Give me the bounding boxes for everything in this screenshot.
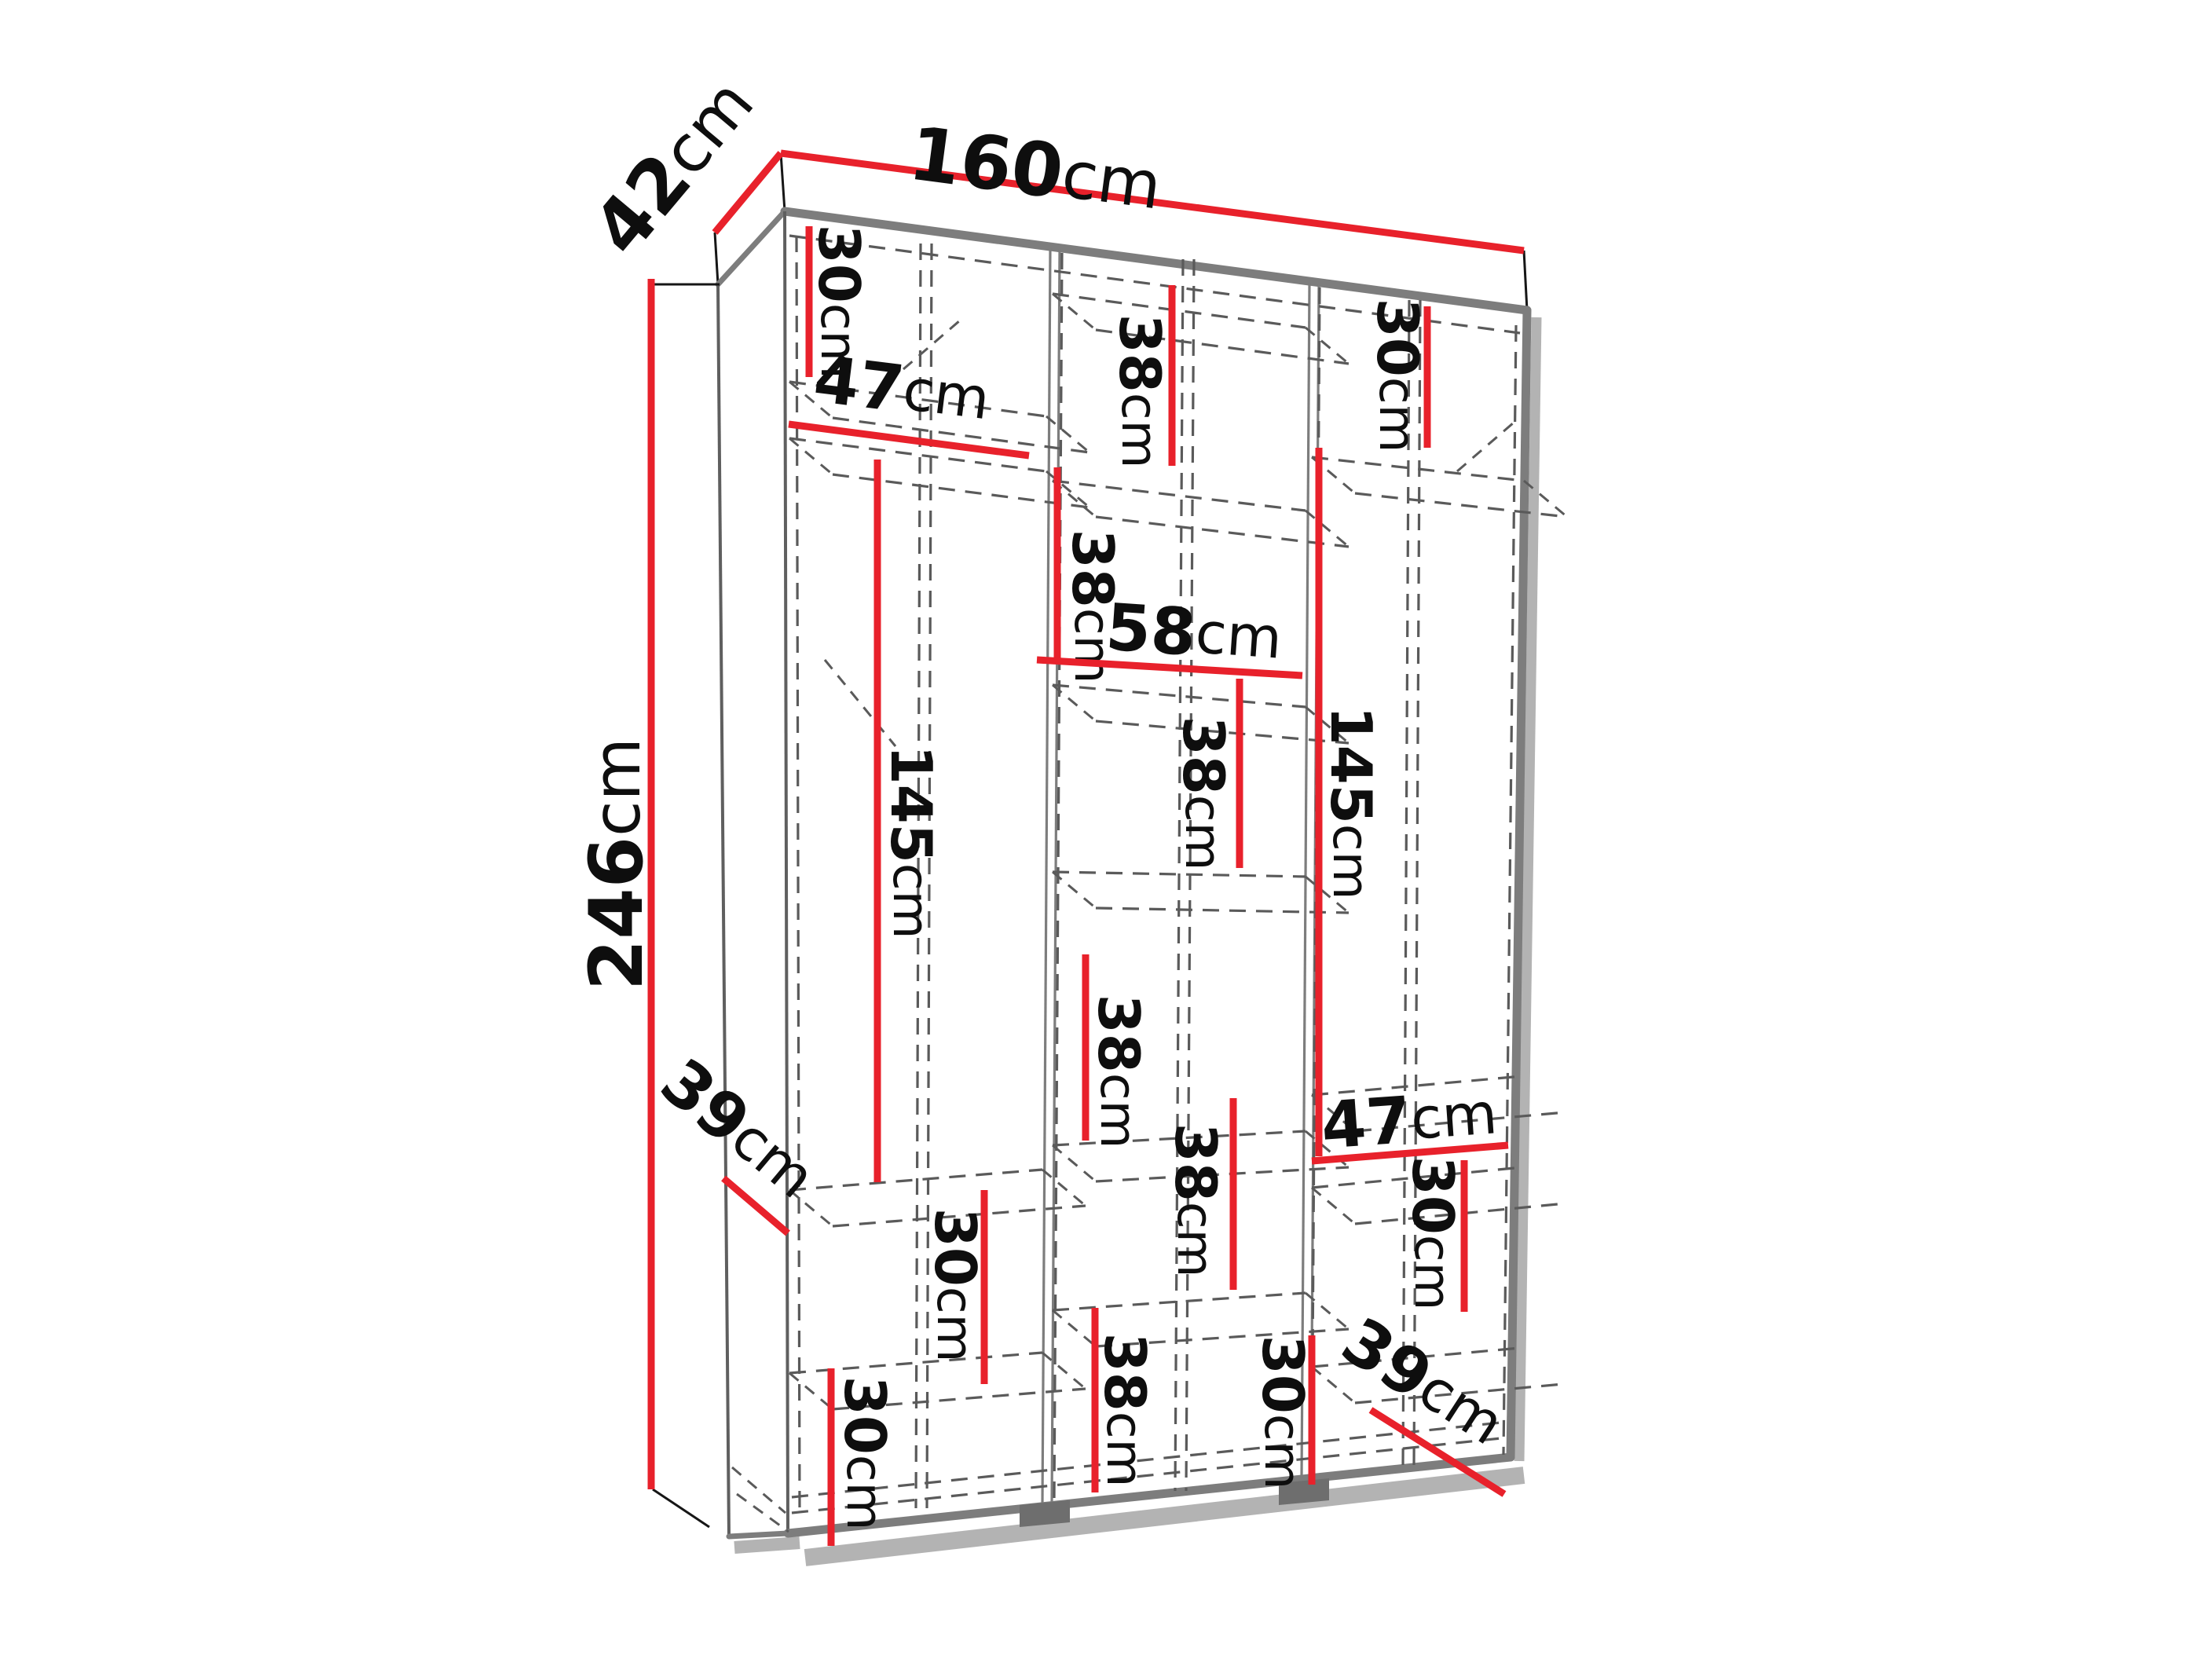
dim-mid-38-bottom-label: 38cm — [1092, 1333, 1158, 1488]
side-panel-bottom-edge — [729, 1533, 788, 1536]
dim-left-cell-30-value: 30 — [922, 1208, 988, 1287]
dim-mid-38-fourth-value: 38 — [1086, 994, 1152, 1073]
dim-right-145-value: 145 — [1318, 706, 1384, 824]
dim-left-47-unit: cm — [899, 357, 993, 434]
extension-line-bottom — [653, 1489, 709, 1527]
dim-left-cell-30-unit: cm — [926, 1287, 984, 1363]
dim-left-cell-30-label: 30cm — [922, 1208, 988, 1363]
wardrobe-dimension-diagram: 160cm42cm246cm30cm47cm145cm39cm30cm30cm3… — [0, 0, 2212, 1659]
dim-right-47-value: 47 — [1319, 1082, 1413, 1163]
dim-bottom-left-30-unit: cm — [836, 1455, 894, 1531]
dim-mid-38-top-label: 38cm — [1107, 314, 1173, 469]
dim-mid-38-third-unit: cm — [1174, 795, 1232, 871]
dim-right-47-unit: cm — [1408, 1081, 1500, 1152]
dim-mid-38-fifth-label: 38cm — [1163, 1123, 1229, 1278]
dim-mid-38-bottom-unit: cm — [1096, 1412, 1154, 1488]
dim-mid-58-unit: cm — [1193, 600, 1284, 672]
dim-mid-38-third-label: 38cm — [1170, 716, 1236, 871]
dim-mid-38-fourth-label: 38cm — [1086, 994, 1152, 1149]
dim-right-145-label: 145cm — [1318, 706, 1384, 900]
dim-mid-38-bottom-value: 38 — [1092, 1333, 1158, 1412]
dim-right-145-unit: cm — [1322, 824, 1380, 900]
dim-mid-30-bottom-label: 30cm — [1250, 1335, 1316, 1490]
floor-shadow-left — [734, 1543, 800, 1547]
dim-left-145-unit: cm — [882, 863, 940, 939]
cabinet-side-panel — [718, 211, 788, 1536]
dim-top-left-30-value: 30 — [806, 225, 872, 303]
dim-mid-38-third-value: 38 — [1170, 716, 1236, 795]
dim-mid-38-top-unit: cm — [1111, 393, 1169, 469]
dim-right-30-value: 30 — [1400, 1156, 1466, 1235]
dim-top-right-30-label: 30cm — [1364, 298, 1430, 453]
dim-height-246-value: 246 — [574, 837, 660, 991]
extension-lines — [653, 284, 720, 1527]
dim-right-30-unit: cm — [1404, 1235, 1462, 1311]
dim-height-246-label: 246cm — [574, 738, 660, 991]
dim-mid-38-fifth-value: 38 — [1163, 1123, 1229, 1202]
dim-width-160-unit: cm — [1057, 135, 1166, 224]
dim-mid-38-fourth-unit: cm — [1090, 1073, 1148, 1149]
dim-height-246-unit: cm — [579, 738, 655, 837]
dim-left-47-value: 47 — [810, 342, 908, 427]
dim-mid-38-fifth-unit: cm — [1166, 1202, 1225, 1278]
dim-mid-30-bottom-value: 30 — [1250, 1335, 1316, 1414]
dim-top-right-30-value: 30 — [1364, 298, 1430, 377]
dim-bottom-left-30-label: 30cm — [832, 1376, 898, 1531]
dim-mid-58-value: 58 — [1104, 590, 1198, 671]
diagram-stage: 160cm42cm246cm30cm47cm145cm39cm30cm30cm3… — [0, 0, 2212, 1659]
dim-top-right-30-unit: cm — [1368, 377, 1426, 453]
dim-bottom-left-30-value: 30 — [832, 1376, 898, 1455]
dim-mid-30-bottom-unit: cm — [1254, 1414, 1312, 1490]
dim-mid-38-top-value: 38 — [1107, 314, 1173, 393]
dim-right-30-label: 30cm — [1400, 1156, 1466, 1311]
dim-left-145-label: 145cm — [878, 745, 944, 939]
dim-left-145-value: 145 — [878, 745, 944, 863]
